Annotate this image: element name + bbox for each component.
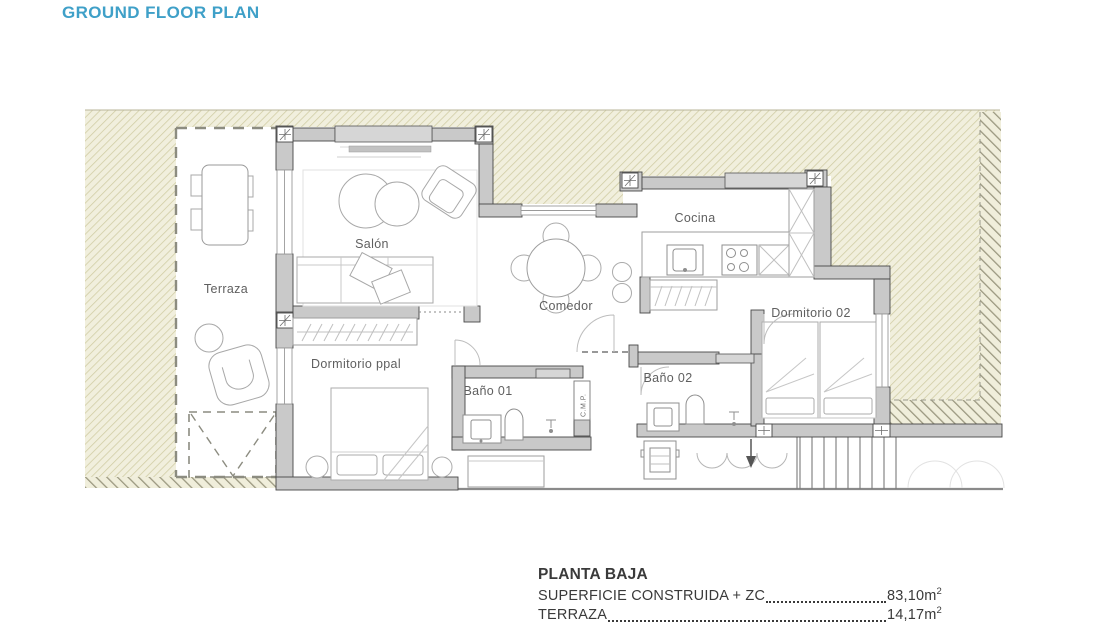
legend-row-label: SUPERFICIE CONSTRUIDA + ZC bbox=[538, 587, 765, 606]
room-label-bano-02: Baño 02 bbox=[643, 371, 692, 385]
room-label-dormitorio-02: Dormitorio 02 bbox=[771, 306, 851, 320]
armchair bbox=[419, 163, 479, 222]
legend-row-superficie: SUPERFICIE CONSTRUIDA + ZC 83,10m2 bbox=[538, 587, 942, 606]
dotted-leader bbox=[608, 620, 886, 622]
room-label-salon: Salón bbox=[355, 237, 389, 251]
double-bed bbox=[331, 388, 428, 480]
tall-unit-x bbox=[789, 189, 814, 277]
peninsula-unit bbox=[650, 280, 717, 310]
room-label-cocina: Cocina bbox=[674, 211, 715, 225]
toilet bbox=[505, 409, 523, 440]
legend-row-label: TERRAZA bbox=[538, 606, 607, 625]
sofa bbox=[297, 253, 433, 305]
tv bbox=[349, 146, 431, 152]
toilet bbox=[686, 395, 704, 424]
shower-symbol bbox=[546, 420, 556, 433]
single-bed bbox=[762, 322, 818, 418]
side-table bbox=[195, 324, 223, 352]
bath-sink bbox=[463, 415, 501, 443]
lounge-chair bbox=[206, 342, 273, 409]
awning-scallops bbox=[697, 453, 787, 468]
faint-arcs bbox=[908, 461, 1004, 488]
salon-furniture bbox=[297, 146, 479, 306]
counter bbox=[642, 232, 814, 277]
ac-unit bbox=[641, 441, 679, 479]
entry-arrow bbox=[746, 439, 756, 468]
dotted-leader bbox=[766, 601, 886, 603]
legend-row-value: 14,17m2 bbox=[887, 606, 942, 625]
planter bbox=[468, 456, 544, 487]
room-label-cmp: C.M.P. bbox=[581, 394, 588, 418]
room-label-terraza: Terraza bbox=[204, 282, 248, 296]
wardrobe bbox=[293, 318, 417, 345]
dining-table bbox=[527, 239, 585, 297]
stool bbox=[613, 263, 632, 282]
nightstand bbox=[432, 457, 452, 477]
legend-title: PLANTA BAJA bbox=[538, 566, 942, 584]
legend-row-value: 83,10m2 bbox=[887, 587, 942, 606]
interior-dashes bbox=[419, 312, 629, 352]
room-label-comedor: Comedor bbox=[539, 299, 593, 313]
stairs bbox=[797, 437, 896, 489]
stool bbox=[613, 284, 632, 303]
dormitorio-ppal-furniture bbox=[293, 318, 452, 480]
bath-sink bbox=[647, 403, 679, 431]
room-label-dormitorio-ppal: Dormitorio ppal bbox=[311, 357, 401, 371]
single-bed bbox=[820, 322, 876, 418]
terrace-table bbox=[202, 165, 248, 245]
coffee-table bbox=[375, 182, 419, 226]
nightstand bbox=[306, 456, 328, 478]
legend-row-terraza: TERRAZA 14,17m2 bbox=[538, 606, 942, 625]
floor-plan: Terraza Salón Comedor Cocina Dormitorio … bbox=[0, 0, 1110, 626]
dormitorio-02-furniture bbox=[758, 322, 878, 418]
legend: PLANTA BAJA SUPERFICIE CONSTRUIDA + ZC 8… bbox=[538, 566, 942, 625]
room-label-bano-01: Baño 01 bbox=[463, 384, 512, 398]
